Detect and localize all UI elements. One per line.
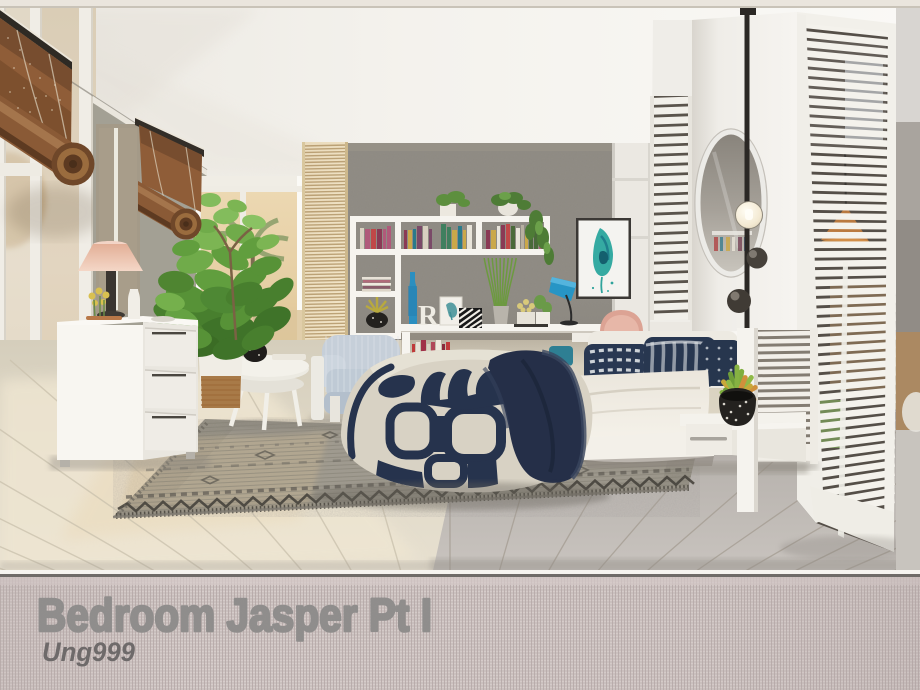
svg-text:R: R xyxy=(418,301,439,332)
svg-text:Ung999: Ung999 xyxy=(42,637,135,667)
